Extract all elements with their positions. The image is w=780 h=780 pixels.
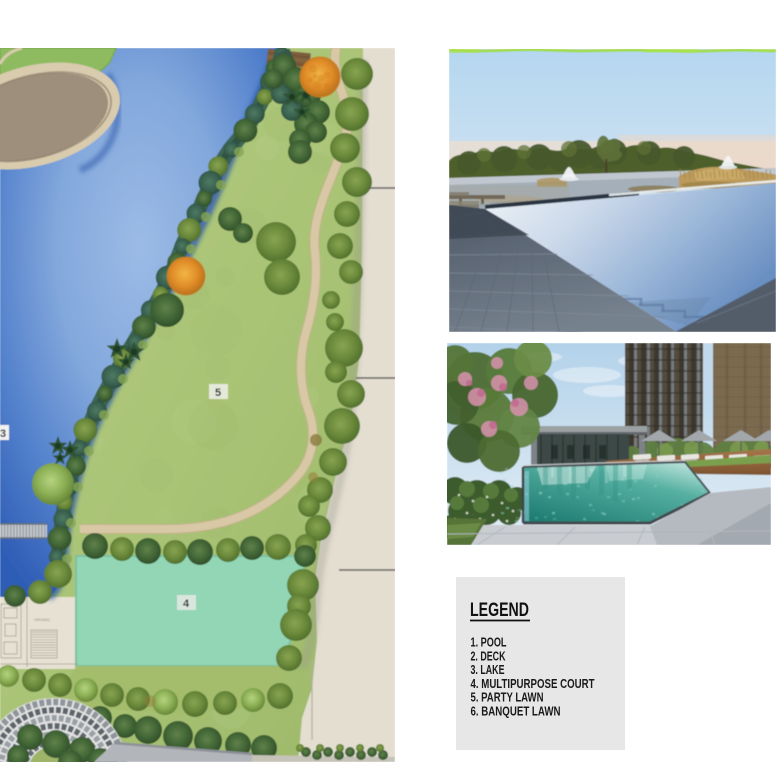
svg-text:3: 3	[0, 428, 6, 440]
svg-text:1. POOL: 1. POOL	[471, 636, 507, 650]
svg-text:ORGANIC: ORGANIC	[34, 618, 51, 622]
svg-text:2. DECK: 2. DECK	[471, 649, 506, 663]
svg-text:3. LAKE: 3. LAKE	[471, 663, 505, 677]
svg-text:5. PARTY LAWN: 5. PARTY LAWN	[471, 691, 544, 705]
svg-text:4. MULTIPURPOSE COURT: 4. MULTIPURPOSE COURT	[471, 677, 595, 691]
svg-text:LEGEND: LEGEND	[470, 599, 529, 621]
svg-text:4: 4	[183, 598, 190, 610]
svg-text:6. BANQUET LAWN: 6. BANQUET LAWN	[471, 705, 561, 719]
svg-text:5: 5	[215, 387, 221, 399]
